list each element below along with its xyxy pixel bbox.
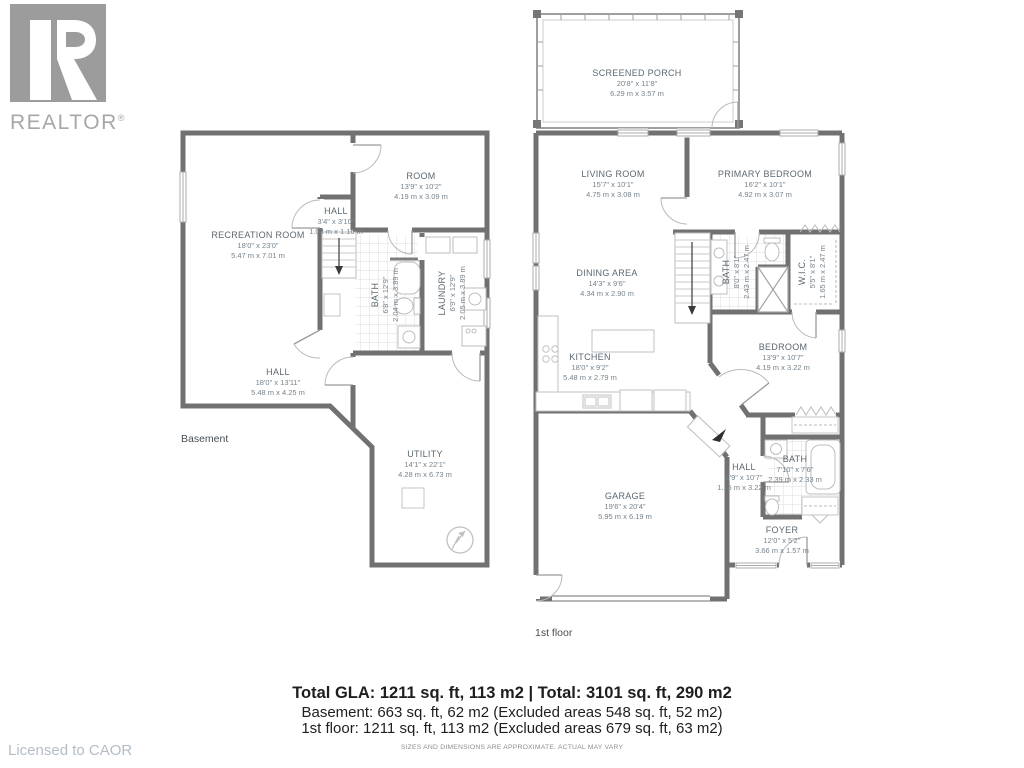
room-label-foyer: FOYER 12'0" x 5'2" 3.66 m x 1.57 m <box>755 524 809 556</box>
room-label-wic: W.I.C. 5'5" x 8'1" 1.65 m x 2.47 m <box>796 245 828 299</box>
room-label-laundry: LAUNDRY 6'9" x 12'9" 2.05 m x 3.89 m <box>436 266 468 320</box>
floorplan-page: REALTOR® <box>0 0 1024 768</box>
room-label-basement-hall-small: HALL 3'4" x 3'10" 1.03 m x 1.16 m <box>309 205 363 237</box>
room-label-primary-bath: BATH 8'0" x 8'1" 2.43 m x 2.47 m <box>720 245 752 299</box>
total-gla-line: Total GLA: 1211 sq. ft, 113 m2 | Total: … <box>0 684 1024 703</box>
room-label-basement-hall: HALL 18'0" x 13'11" 5.48 m x 4.25 m <box>251 366 305 398</box>
room-label-bedroom: BEDROOM 13'9" x 10'7" 4.19 m x 3.22 m <box>756 341 810 373</box>
bedroom-closet <box>792 417 838 433</box>
room-label-room: ROOM 13'9" x 10'2" 4.19 m x 3.09 m <box>394 170 448 202</box>
room-label-utility: UTILITY 14'1" x 22'1" 4.28 m x 6.73 m <box>398 448 452 480</box>
room-label-recreation-room: RECREATION ROOM 18'0" x 23'0" 5.47 m x 7… <box>211 229 304 261</box>
first-floor-area-line: 1st floor: 1211 sq. ft, 113 m2 (Excluded… <box>0 720 1024 737</box>
room-label-hall-bath: BATH 7'10" x 7'6" 2.39 m x 2.33 m <box>768 453 822 485</box>
basement-stairs <box>322 232 356 316</box>
basement-floor-tag: Basement <box>181 433 228 445</box>
first-floor-stairs <box>675 233 710 323</box>
room-label-screened-porch: SCREENED PORCH 20'8" x 11'8" 6.29 m x 3.… <box>592 67 681 99</box>
utility-fixtures <box>402 488 424 508</box>
linen-closet <box>758 267 788 312</box>
room-label-garage: GARAGE 19'6" x 20'4" 5.95 m x 6.19 m <box>598 490 652 522</box>
room-label-kitchen: KITCHEN 18'0" x 9'2" 5.48 m x 2.79 m <box>563 351 617 383</box>
room-label-dining-area: DINING AREA 14'3" x 9'6" 4.34 m x 2.90 m <box>576 267 637 299</box>
foyer-closet <box>802 497 838 523</box>
first-floor-tag: 1st floor <box>535 627 572 639</box>
garage-entry-door <box>687 416 729 457</box>
licensed-to-text: Licensed to CAOR <box>8 742 132 759</box>
floorplan-drawing <box>0 0 1024 768</box>
basement-area-line: Basement: 663 sq. ft, 62 m2 (Excluded ar… <box>0 704 1024 721</box>
room-label-first-hall: HALL 3'9" x 10'7" 1.15 m x 3.22 m <box>717 461 771 493</box>
room-label-living-room: LIVING ROOM 15'7" x 10'1" 4.75 m x 3.08 … <box>581 168 644 200</box>
disclaimer-text: SIZES AND DIMENSIONS ARE APPROXIMATE. AC… <box>0 744 1024 751</box>
room-label-basement-bath: BATH 6'8" x 12'9" 2.04 m x 3.89 m <box>369 268 401 322</box>
room-label-primary-bedroom: PRIMARY BEDROOM 16'2" x 10'1" 4.92 m x 3… <box>718 168 812 200</box>
north-arrow-icon <box>447 527 473 553</box>
